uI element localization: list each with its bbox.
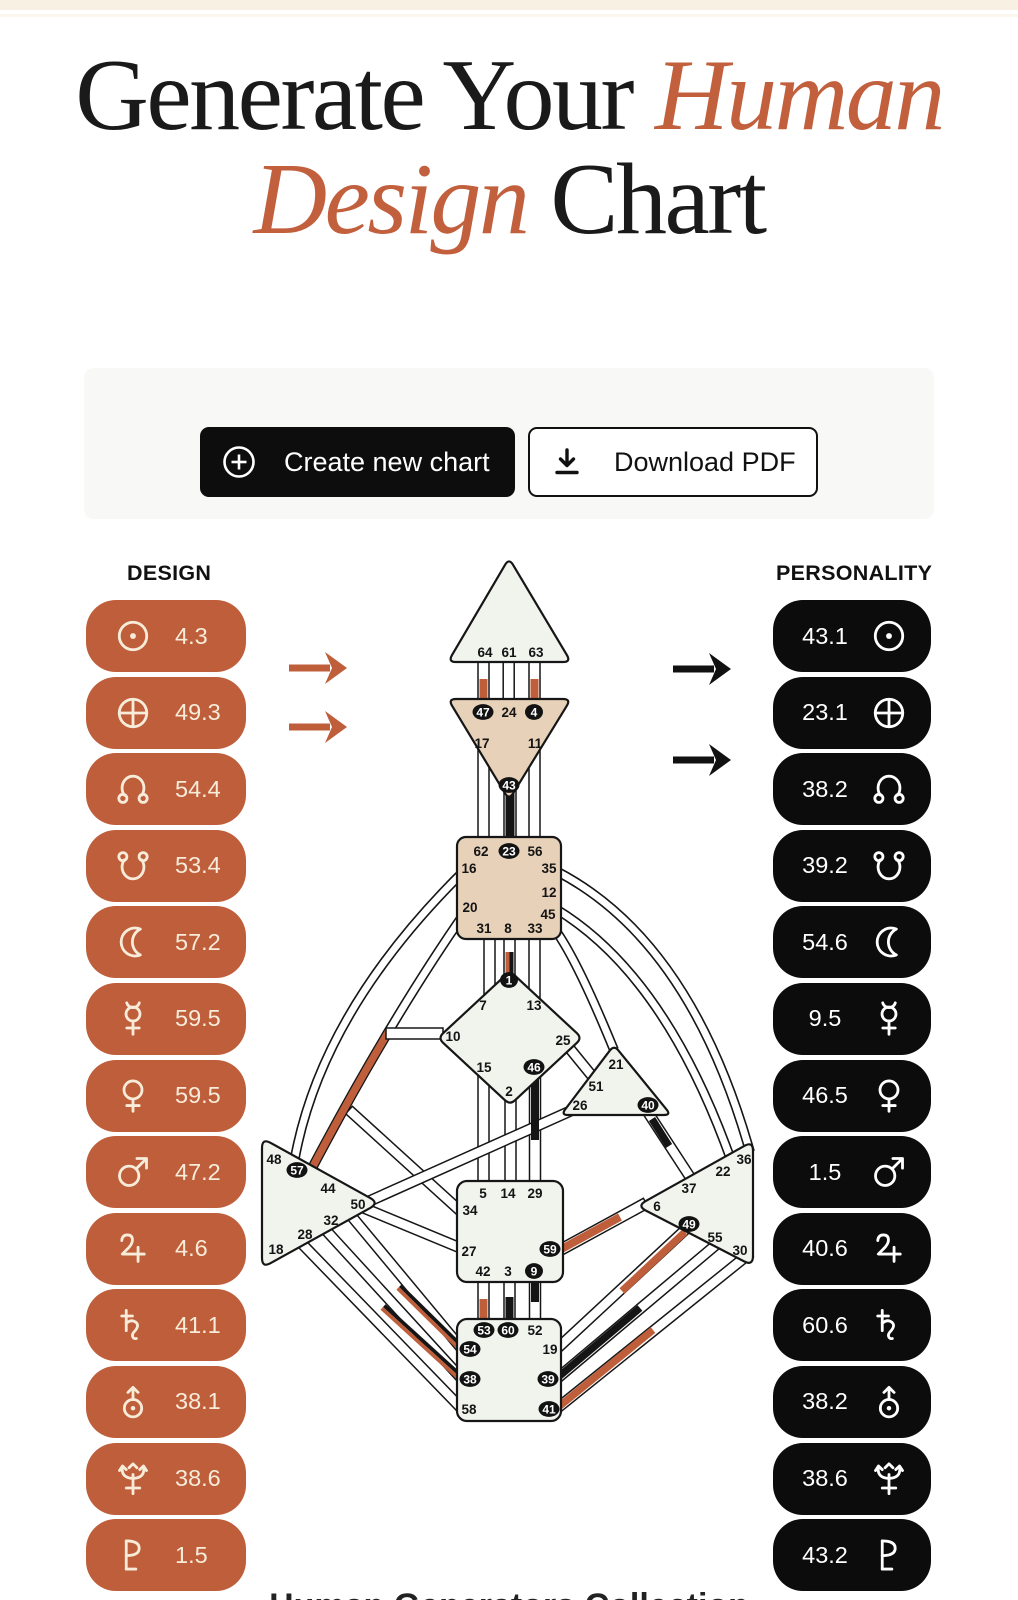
svg-text:36: 36 bbox=[736, 1152, 752, 1167]
svg-text:5: 5 bbox=[479, 1186, 487, 1201]
svg-text:13: 13 bbox=[526, 998, 542, 1013]
svg-text:2: 2 bbox=[505, 1084, 513, 1099]
svg-text:21: 21 bbox=[608, 1057, 624, 1072]
svg-text:50: 50 bbox=[350, 1197, 365, 1212]
svg-text:26: 26 bbox=[572, 1098, 588, 1113]
svg-text:44: 44 bbox=[320, 1181, 336, 1196]
svg-text:58: 58 bbox=[461, 1402, 477, 1417]
svg-text:48: 48 bbox=[266, 1152, 282, 1167]
svg-text:53: 53 bbox=[477, 1324, 491, 1338]
svg-text:41: 41 bbox=[542, 1403, 556, 1417]
svg-text:64: 64 bbox=[477, 645, 493, 660]
svg-text:51: 51 bbox=[588, 1079, 604, 1094]
svg-text:30: 30 bbox=[732, 1243, 747, 1258]
svg-text:8: 8 bbox=[504, 921, 512, 936]
svg-text:18: 18 bbox=[268, 1242, 284, 1257]
svg-text:1: 1 bbox=[506, 974, 513, 988]
svg-text:34: 34 bbox=[462, 1203, 478, 1218]
svg-text:45: 45 bbox=[540, 907, 556, 922]
svg-text:10: 10 bbox=[445, 1029, 460, 1044]
svg-text:60: 60 bbox=[501, 1324, 515, 1338]
svg-text:17: 17 bbox=[474, 736, 489, 751]
svg-text:49: 49 bbox=[682, 1218, 696, 1232]
svg-text:47: 47 bbox=[476, 706, 490, 720]
svg-text:39: 39 bbox=[541, 1373, 555, 1387]
svg-text:54: 54 bbox=[463, 1343, 477, 1357]
svg-text:63: 63 bbox=[528, 645, 544, 660]
svg-text:9: 9 bbox=[531, 1265, 538, 1279]
svg-text:6: 6 bbox=[653, 1199, 661, 1214]
svg-text:7: 7 bbox=[479, 998, 487, 1013]
svg-text:61: 61 bbox=[501, 645, 517, 660]
svg-text:27: 27 bbox=[461, 1244, 476, 1259]
svg-text:31: 31 bbox=[476, 921, 492, 936]
svg-text:33: 33 bbox=[527, 921, 543, 936]
svg-text:16: 16 bbox=[461, 861, 477, 876]
svg-text:22: 22 bbox=[715, 1164, 730, 1179]
svg-text:56: 56 bbox=[527, 844, 543, 859]
svg-text:4: 4 bbox=[531, 706, 538, 720]
svg-text:43: 43 bbox=[502, 779, 516, 793]
svg-text:46: 46 bbox=[527, 1061, 541, 1075]
svg-text:12: 12 bbox=[541, 885, 556, 900]
svg-text:19: 19 bbox=[542, 1342, 557, 1357]
svg-text:24: 24 bbox=[501, 705, 517, 720]
svg-text:59: 59 bbox=[543, 1243, 557, 1257]
svg-text:55: 55 bbox=[707, 1230, 723, 1245]
svg-text:37: 37 bbox=[681, 1181, 696, 1196]
svg-text:42: 42 bbox=[475, 1264, 490, 1279]
svg-text:3: 3 bbox=[504, 1264, 512, 1279]
svg-text:11: 11 bbox=[528, 736, 543, 751]
svg-text:32: 32 bbox=[323, 1213, 338, 1228]
svg-text:14: 14 bbox=[500, 1186, 516, 1201]
svg-text:35: 35 bbox=[541, 861, 557, 876]
svg-text:57: 57 bbox=[290, 1164, 304, 1178]
svg-text:23: 23 bbox=[502, 845, 516, 859]
svg-text:62: 62 bbox=[473, 844, 488, 859]
svg-text:29: 29 bbox=[527, 1186, 542, 1201]
svg-text:28: 28 bbox=[297, 1227, 313, 1242]
svg-text:25: 25 bbox=[555, 1033, 571, 1048]
svg-text:15: 15 bbox=[476, 1060, 492, 1075]
svg-text:38: 38 bbox=[463, 1373, 477, 1387]
svg-text:40: 40 bbox=[641, 1099, 655, 1113]
svg-text:52: 52 bbox=[527, 1323, 542, 1338]
svg-text:20: 20 bbox=[462, 900, 477, 915]
